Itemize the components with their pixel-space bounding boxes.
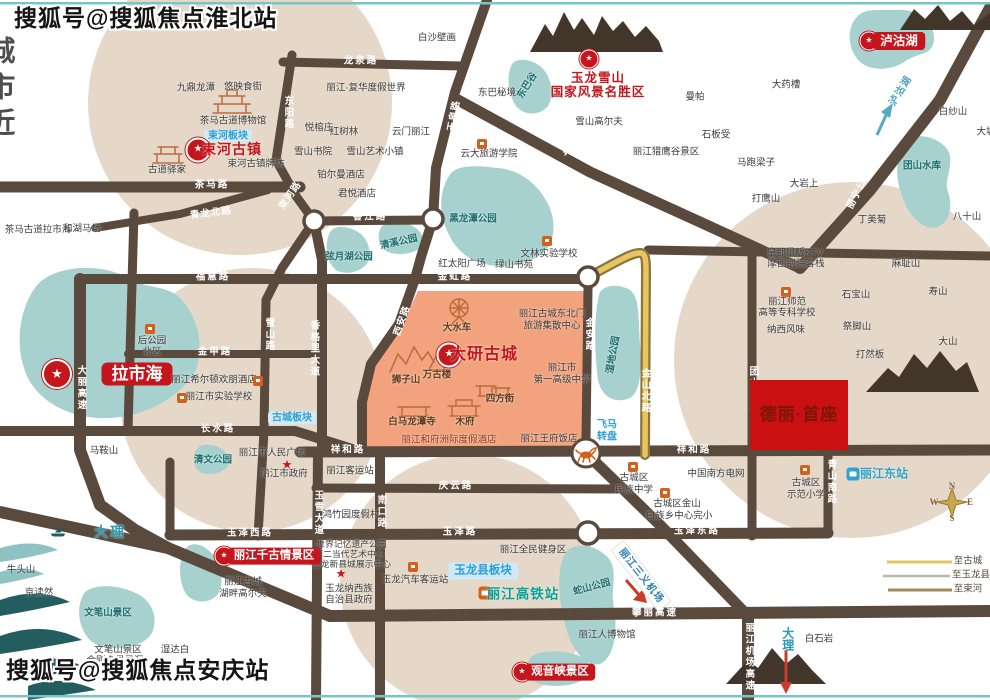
- place-dongbeimen-2: 旅游集散中心: [523, 322, 580, 333]
- place-quanmin-jianshen: 丽江全民健身区: [500, 546, 567, 557]
- side-vertical-text: 城市近: [0, 36, 15, 144]
- place-jijiaoshan: 祭脚山: [843, 323, 872, 334]
- place-baishabihua: 白沙壁画: [418, 34, 456, 45]
- road-daligaosu: 大丽高速: [75, 365, 86, 411]
- shifan-badge-icon: [781, 287, 791, 297]
- place-minzu-school-2: 民族中学: [615, 486, 653, 497]
- place-dashan: 大山: [938, 338, 957, 349]
- hilton-badge-icon: [253, 376, 263, 386]
- place-shifan-primary-1: 古城区: [792, 479, 821, 490]
- place-chamagudao-lashihai: 茶马古道拉市海: [5, 226, 72, 237]
- legend-to-yulongxian: 至玉龙县: [952, 571, 990, 582]
- road-shuhelu: 束河路: [278, 180, 305, 212]
- place-shibaoshan: 石宝山: [842, 291, 871, 302]
- place-niutoushan: 牛头山: [7, 566, 36, 577]
- road-jichanggaosu: 丽江机场高速: [743, 623, 754, 692]
- place-hupan-golf-2: 湖畔高尔夫: [219, 590, 267, 601]
- place-nanfangdianwang: 中国南方电网: [687, 470, 744, 481]
- road-yuquanlu: 玉泉路: [447, 100, 463, 133]
- shifanxiaoxue-badge-icon: [800, 465, 810, 475]
- road-liningonglu: 丽宁公路: [845, 169, 874, 211]
- road-qinglongbeilu: 青龙北路: [190, 206, 233, 222]
- place-yulong-bus-station: 玉龙汽车客运站: [382, 576, 449, 587]
- place-hongzhuyuan-resort: 鸿竹园度假村: [322, 511, 379, 522]
- place-naxifengwei: 纳西风味: [767, 326, 805, 337]
- road-changshuilu: 长水路: [201, 425, 236, 436]
- compass-s: S: [949, 513, 954, 523]
- road-wenzhilu: 文智路: [686, 237, 721, 248]
- water-dongbagu: 东巴谷: [516, 71, 540, 101]
- road-longquanlu: 龙泉路: [344, 57, 379, 68]
- road-qingshannanlu: 青山南路: [825, 459, 836, 505]
- place-hongtaiyang-square: 红太阳广场: [438, 260, 486, 271]
- road-jinhonglu: 金虹路: [438, 273, 473, 284]
- place-dapo: 大坡: [976, 128, 990, 139]
- project-block-deli-shouzuo: 德丽·首座: [750, 380, 848, 450]
- zone-yulongxian: 玉龙县板块: [448, 563, 518, 580]
- place-hilton-hotel: 丽江希尔顿欢朋酒店: [171, 376, 257, 387]
- water-qingwen-park: 清文公园: [194, 456, 232, 467]
- place-shiyan-school: 丽江市实验学校: [186, 393, 253, 404]
- landmark-dayan-old-town: 大研古城: [450, 346, 518, 364]
- map-labels-layer: 搜狐号@搜狐焦点淮北站搜狐号@搜狐焦点安庆站城市近九鼎龙潭悠映食街茶马古道博物馆…: [0, 0, 990, 700]
- compass-e: E: [967, 497, 973, 507]
- place-lijiang-gov: 丽江市政府: [260, 470, 308, 481]
- road-yuxuedadao: 玉雪大道: [312, 490, 323, 536]
- place-jingduran: 京读然: [25, 589, 54, 600]
- place-feima-1: 飞马: [597, 419, 617, 430]
- place-daranban: 打然板: [856, 351, 885, 362]
- yulong-gov-star-icon: [336, 567, 347, 580]
- road-qingyunlu: 庆云路: [439, 482, 474, 493]
- place-keyunzhan: 丽江客运站: [326, 467, 374, 478]
- place-minzu-school-1: 古城区: [620, 474, 649, 485]
- place-manpa: 曼帕: [685, 93, 704, 104]
- place-junyue-hotel: 君悦酒店: [338, 190, 376, 201]
- road-xianghelu-west: 祥和路: [331, 446, 366, 457]
- place-dayaocao: 大药槽: [772, 81, 801, 92]
- road-xianggelidadao: 香格里大道: [308, 320, 319, 378]
- road-xiangjianglu: 香江路: [353, 213, 388, 224]
- lashihai-badge-icon: [42, 359, 72, 389]
- water-heilongtan-park: 黑龙潭公园: [449, 215, 497, 226]
- road-jinjialu: 金甲路: [198, 348, 233, 359]
- place-xueshan-golf: 雪山高尔夫: [575, 118, 623, 129]
- place-feima-2: 转盘: [597, 431, 617, 442]
- place-dongbamijing: 东巴秘境: [478, 89, 516, 100]
- legend-to-gucheng: 至古城: [954, 557, 983, 568]
- place-jinshan-school-2: 白族乡中心完小: [646, 512, 713, 523]
- road-panligaosu: 攀丽高速: [632, 609, 678, 620]
- watermark-top: 搜狐号@搜狐焦点淮北站: [14, 6, 277, 32]
- road-xueshanlu: 雪山路: [263, 318, 274, 353]
- lijiang-location-map: 搜狐号@搜狐焦点淮北站搜狐号@搜狐焦点安庆站城市近九鼎龙潭悠映食街茶马古道博物馆…: [0, 0, 990, 700]
- yulong-bus-badge-icon: [408, 562, 418, 572]
- place-dongbeimen-1: 丽江古城东北门: [519, 310, 586, 321]
- place-renmin-square: 丽江市人民广场: [239, 449, 306, 460]
- place-bashishan: 八十山: [953, 213, 982, 224]
- road-huanchengbeilu: 环城北路: [562, 133, 605, 160]
- place-moxibieyuan: 摩西别院客栈: [767, 260, 824, 271]
- yulong-snow-badge-icon: [580, 50, 599, 69]
- place-lvshanshuyuan: 绿山书苑: [495, 261, 533, 272]
- dongzhan-train-icon: [847, 468, 860, 481]
- place-lieyinggu: 丽江猎鹰谷景区: [633, 148, 700, 159]
- road-chamalu: 茶马路: [195, 181, 230, 192]
- place-lijiangren-museum: 丽江人博物馆: [578, 631, 635, 642]
- water-shidi-park: 湿地公园: [605, 335, 622, 374]
- dali-boat-icon: [50, 526, 66, 537]
- place-dashuiche: 大水车: [443, 324, 472, 335]
- water-wenbishan: 文笔山景区: [84, 609, 132, 620]
- place-sifangjie: 四方街: [486, 395, 515, 406]
- place-shifan-primary-2: 示范小学: [787, 491, 825, 502]
- place-shoushan: 寿山: [928, 288, 947, 299]
- place-shidabai: 湿达白: [161, 646, 190, 657]
- direction-lugu: 泸沽湖: [888, 74, 915, 108]
- place-hougongyuan-2: 北区: [142, 348, 161, 359]
- landmark-lugu-lake: 泸沽湖: [873, 32, 925, 50]
- landmark-yulong-snow-2: 国家风景名胜区: [551, 85, 646, 99]
- place-chamagudao-museum: 茶马古道博物馆: [200, 117, 267, 128]
- watermark-bottom: 搜狐号@搜狐焦点安庆站: [6, 658, 269, 684]
- place-shibanshou: 石板受: [702, 131, 731, 142]
- place-machishan: 麻耻山: [892, 260, 921, 271]
- place-xueshan-art-town: 雪山艺术小镇: [346, 148, 403, 159]
- road-xianghelu-east: 祥和路: [677, 446, 712, 457]
- place-gudaoyijia: 古道驿家: [148, 166, 186, 177]
- place-xinxiancheng-center: ·玉龙新县城展示中心: [309, 560, 391, 570]
- place-baimalongtan-temple: 白马龙潭寺: [388, 418, 436, 429]
- landmark-shuhe-old-town: 束河古镇: [202, 142, 262, 158]
- place-dingmeiju: 丁美菊: [858, 216, 887, 227]
- minzu-school-badge-icon: [628, 462, 638, 472]
- place-baishashan: 白纱山: [939, 108, 968, 119]
- road-yuzelu: 玉泽路: [443, 528, 478, 539]
- water-tuanshan-reservoir: 团山水库: [903, 162, 941, 173]
- road-yuzexilu: 玉泽西路: [227, 529, 273, 540]
- direction-dali-south: 大理: [780, 627, 793, 651]
- place-mapaoliangzi: 马跑梁子: [737, 159, 775, 170]
- direction-dali-west: 大理: [94, 525, 126, 541]
- landmark-lashihai: 拉市海: [102, 362, 173, 385]
- place-wangulou: 万古楼: [423, 371, 452, 382]
- place-baishiyan: 白石岩: [805, 635, 834, 646]
- road-jinshanbeilu: 金山北路: [639, 368, 650, 414]
- place-hupan-golf-1: 丽江古城: [224, 578, 262, 589]
- place-wenlin-school: 文林实验学校: [520, 250, 577, 261]
- place-hehumachang: 和湖马场: [63, 225, 101, 236]
- place-youyingshijie: 悠映食街: [224, 83, 262, 94]
- place-xueshanshuyuan: 雪山书院: [294, 148, 332, 159]
- landmark-qianguqing: 丽江千古情景区: [228, 548, 321, 565]
- jinshan-school-badge-icon: [660, 488, 670, 498]
- legend-to-shuhe: 至束河: [954, 585, 983, 596]
- place-diyi-gaozhong-1: 丽江市: [548, 364, 577, 375]
- place-shifan-college-2: 高等专科学校: [758, 309, 815, 320]
- place-jinshan-school-1: 古城区金山: [653, 500, 701, 511]
- airport-sanyi: 丽江三义机场: [612, 541, 671, 610]
- road-dongyanglu: 东阳路: [282, 96, 293, 131]
- water-sheshan-park: 蛇山公园: [572, 578, 611, 598]
- place-wangfu-hotel: 丽江王府饭店: [520, 435, 577, 446]
- landmark-yulong-snow-1: 玉龙雪山: [571, 71, 625, 85]
- compass-n: N: [949, 481, 956, 491]
- place-shizishan: 狮子山: [392, 376, 421, 387]
- place-mufu: 木府: [455, 418, 474, 429]
- place-maanshan: 马鞍山: [90, 447, 119, 458]
- road-fuhuilu: 福慧路: [196, 273, 231, 284]
- landmark-guanyinxia: 观音峡景区: [525, 664, 595, 681]
- place-shuhe-paifang: 束河古镇牌坊: [227, 160, 284, 171]
- place-yunmenlijiang: 云门丽江: [392, 128, 430, 139]
- place-jiudinglongtan: 九鼎龙潭: [177, 84, 215, 95]
- place-dayingshan: 打鹰山: [752, 195, 781, 206]
- place-yulong-gov-2: 自治县政府: [325, 596, 373, 607]
- place-intercontinental-hotel: 丽江和府洲际度假酒店: [401, 436, 496, 447]
- road-yuzedonglu: 玉泽东路: [674, 527, 720, 538]
- water-qingxi-park: 清溪公园: [379, 234, 418, 252]
- station-lijiang-gaotie: 丽江高铁站: [487, 586, 560, 601]
- water-xianyuehu-park: 弦月湖公园: [325, 253, 373, 264]
- place-boerman-hotel: 铂尔曼酒店: [317, 171, 365, 182]
- place-yunda-college: 云大旅游学院: [460, 150, 517, 161]
- yunda-badge-icon: [477, 139, 487, 149]
- zone-gucheng: 古城板块: [268, 411, 316, 424]
- station-lijiang-east: 丽江东站: [860, 467, 908, 480]
- road-xianlu: 西安路: [393, 304, 414, 337]
- place-dayanshang: 大岩上: [790, 180, 819, 191]
- compass-w: W: [930, 497, 939, 507]
- hougongyuan-badge-icon: [145, 324, 155, 334]
- place-fuhua-resort: 丽江·复华度假世界: [326, 84, 405, 95]
- place-diyi-gaozhong-2: 第一高级中学: [533, 376, 590, 387]
- wenlin-badge-icon: [542, 236, 552, 246]
- road-jinanlu: 金安路: [583, 318, 594, 353]
- place-hongshulin: 红树林: [330, 128, 359, 139]
